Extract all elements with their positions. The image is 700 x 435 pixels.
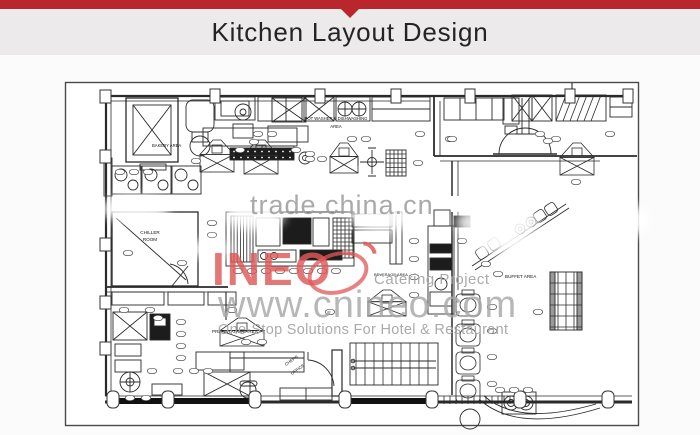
floor-plan: BAKERY AREA POT WASHER & DISHWASHING ARE… — [0, 0, 700, 435]
page: BAKERY AREA POT WASHER & DISHWASHING ARE… — [0, 0, 700, 435]
beverage-area-label: BEVERAGE AREA — [374, 272, 408, 277]
pointer-down-icon — [341, 9, 359, 18]
potwash-area-label-1: POT WASHER & DISHWASHING — [305, 116, 368, 121]
preparation-area-label: PREPARATION AREA — [212, 329, 259, 334]
header-accent-bar — [0, 0, 700, 9]
bakery-area-label: BAKERY AREA — [152, 143, 181, 148]
potwash-area-label-2: AREA — [330, 124, 342, 129]
page-title: Kitchen Layout Design — [212, 17, 489, 48]
buffet-area-label: BUFFET AREA — [505, 274, 537, 279]
chiller-room-label-1: CHILLER — [140, 230, 160, 235]
chiller-room-label-2: ROOM — [143, 237, 157, 242]
